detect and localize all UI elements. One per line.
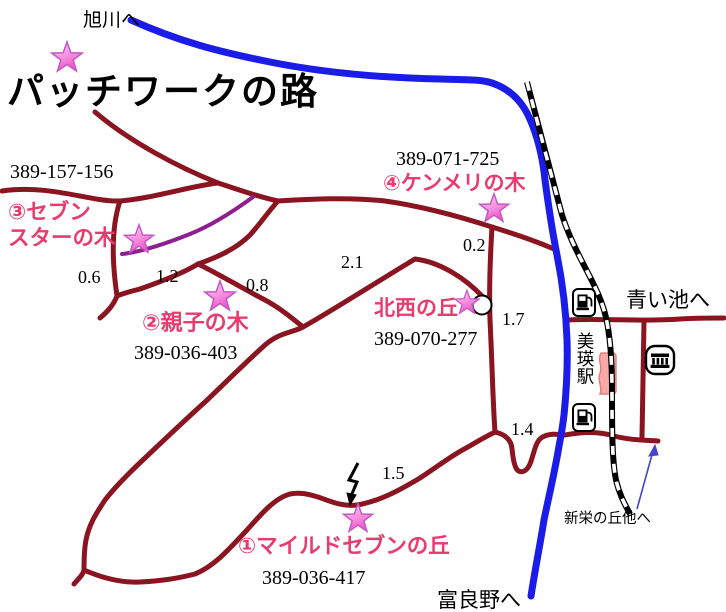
mapcode-hokusei: 389-070-277 [374,328,477,350]
road-northwest-diagonal [95,112,218,183]
road-west-horizontal [2,183,218,201]
distance-label: 1.5 [382,463,405,483]
road-aoiike [568,318,724,320]
map-title: パッチワークの路 [7,70,319,113]
spot-label-mild-seven: ①マイルドセブンの丘 [238,533,450,559]
direction-furano: 富良野へ [437,588,521,612]
road-seven-star-south [100,201,120,318]
direction-asahikawa: 旭川へ [83,9,140,31]
spot-label-seven-star-line2: スターの木 [8,226,116,251]
spot-label-seven-star-line1: ③セブン [8,199,91,225]
star-icon [205,281,235,310]
spot-label-kenmeri: ④ケンメリの木 [383,171,527,195]
fuel-pump-icon [573,289,595,316]
spot-label-hokusei: 北西の丘 [374,296,458,320]
road-vertical-center [490,227,495,432]
distance-label: 2.1 [341,252,364,272]
mapcode-kenmeri: 389-071-725 [396,148,499,170]
distance-label: 1.4 [511,419,534,439]
star-icon [480,194,509,221]
star-icon [344,504,373,531]
direction-shinei: 新栄の丘他へ [564,510,651,527]
distance-label: 0.8 [246,275,269,295]
station-name: 美瑛駅 [575,332,595,385]
shinei-arrow-icon [637,445,658,509]
star-icon [52,42,82,71]
distance-label: 0.6 [78,267,101,287]
fuel-pump-icon [573,404,595,431]
building-icon [646,346,674,374]
mapcode-oyako: 389-036-403 [134,342,237,364]
direction-aoiike: 青い池へ [626,288,710,312]
road-station-east-vertical [642,322,644,437]
zigzag-arrow-icon [347,463,358,505]
distance-label: 1.2 [156,266,179,286]
spot-label-oyako: ②親子の木 [142,311,250,336]
road-j2-to-j4 [198,201,278,264]
mapcode-mild-seven: 389-036-417 [262,567,365,589]
distance-label: 1.7 [502,309,525,329]
distance-label: 0.2 [463,235,486,255]
patchwork-road-map: 旭川へ 389-157-156 389-071-725 389-036-403 … [0,0,726,612]
spot-stars [52,42,509,531]
mapcode-seven-star: 389-157-156 [10,161,113,183]
